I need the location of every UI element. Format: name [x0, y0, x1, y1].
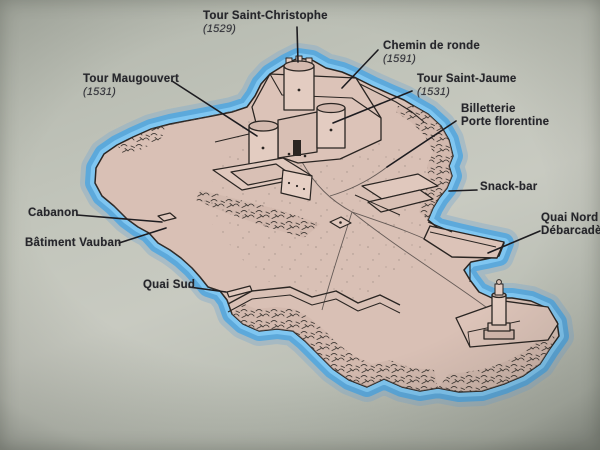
- label-quai-nord: Quai Nord Débarcadère: [541, 212, 600, 238]
- label-year: (1531): [83, 86, 179, 99]
- label-quai-sud: Quai Sud: [143, 279, 195, 292]
- label-title: Billetterie: [461, 103, 516, 115]
- leader-snack-bar: [449, 190, 477, 191]
- island-map-illustration: [0, 0, 600, 450]
- information-panel-photo: Tour Saint-Christophe (1529) Chemin de r…: [0, 0, 600, 450]
- label-tour-saint-jaume: Tour Saint-Jaume (1531): [417, 73, 516, 99]
- label-title: Tour Saint-Christophe: [203, 10, 328, 22]
- label-title: Chemin de ronde: [383, 40, 480, 52]
- label-title: Tour Saint-Jaume: [417, 73, 516, 85]
- label-title: Quai Nord: [541, 212, 598, 224]
- label-year: (1591): [383, 53, 480, 66]
- label-cabanon: Cabanon: [28, 207, 79, 220]
- label-tour-maugouvert: Tour Maugouvert (1531): [83, 73, 179, 99]
- label-batiment-vauban: Bâtiment Vauban: [25, 237, 121, 250]
- tour-saint-christophe-drawing: [284, 56, 314, 110]
- label-snack-bar: Snack-bar: [480, 181, 537, 194]
- label-subtitle: Porte florentine: [461, 116, 549, 129]
- label-billetterie: Billetterie Porte florentine: [461, 103, 549, 129]
- label-title: Snack-bar: [480, 181, 537, 193]
- label-title: Tour Maugouvert: [83, 73, 179, 85]
- label-year: (1531): [417, 86, 516, 99]
- label-title: Cabanon: [28, 207, 79, 219]
- label-chemin-de-ronde: Chemin de ronde (1591): [383, 40, 480, 66]
- label-title: Bâtiment Vauban: [25, 237, 121, 249]
- label-subtitle: Débarcadère: [541, 225, 600, 238]
- label-year: (1529): [203, 23, 328, 36]
- label-title: Quai Sud: [143, 279, 195, 291]
- castle-gate-wall: [278, 112, 317, 158]
- label-tour-saint-christophe: Tour Saint-Christophe (1529): [203, 10, 328, 36]
- tour-saint-jaume-drawing: [317, 104, 345, 149]
